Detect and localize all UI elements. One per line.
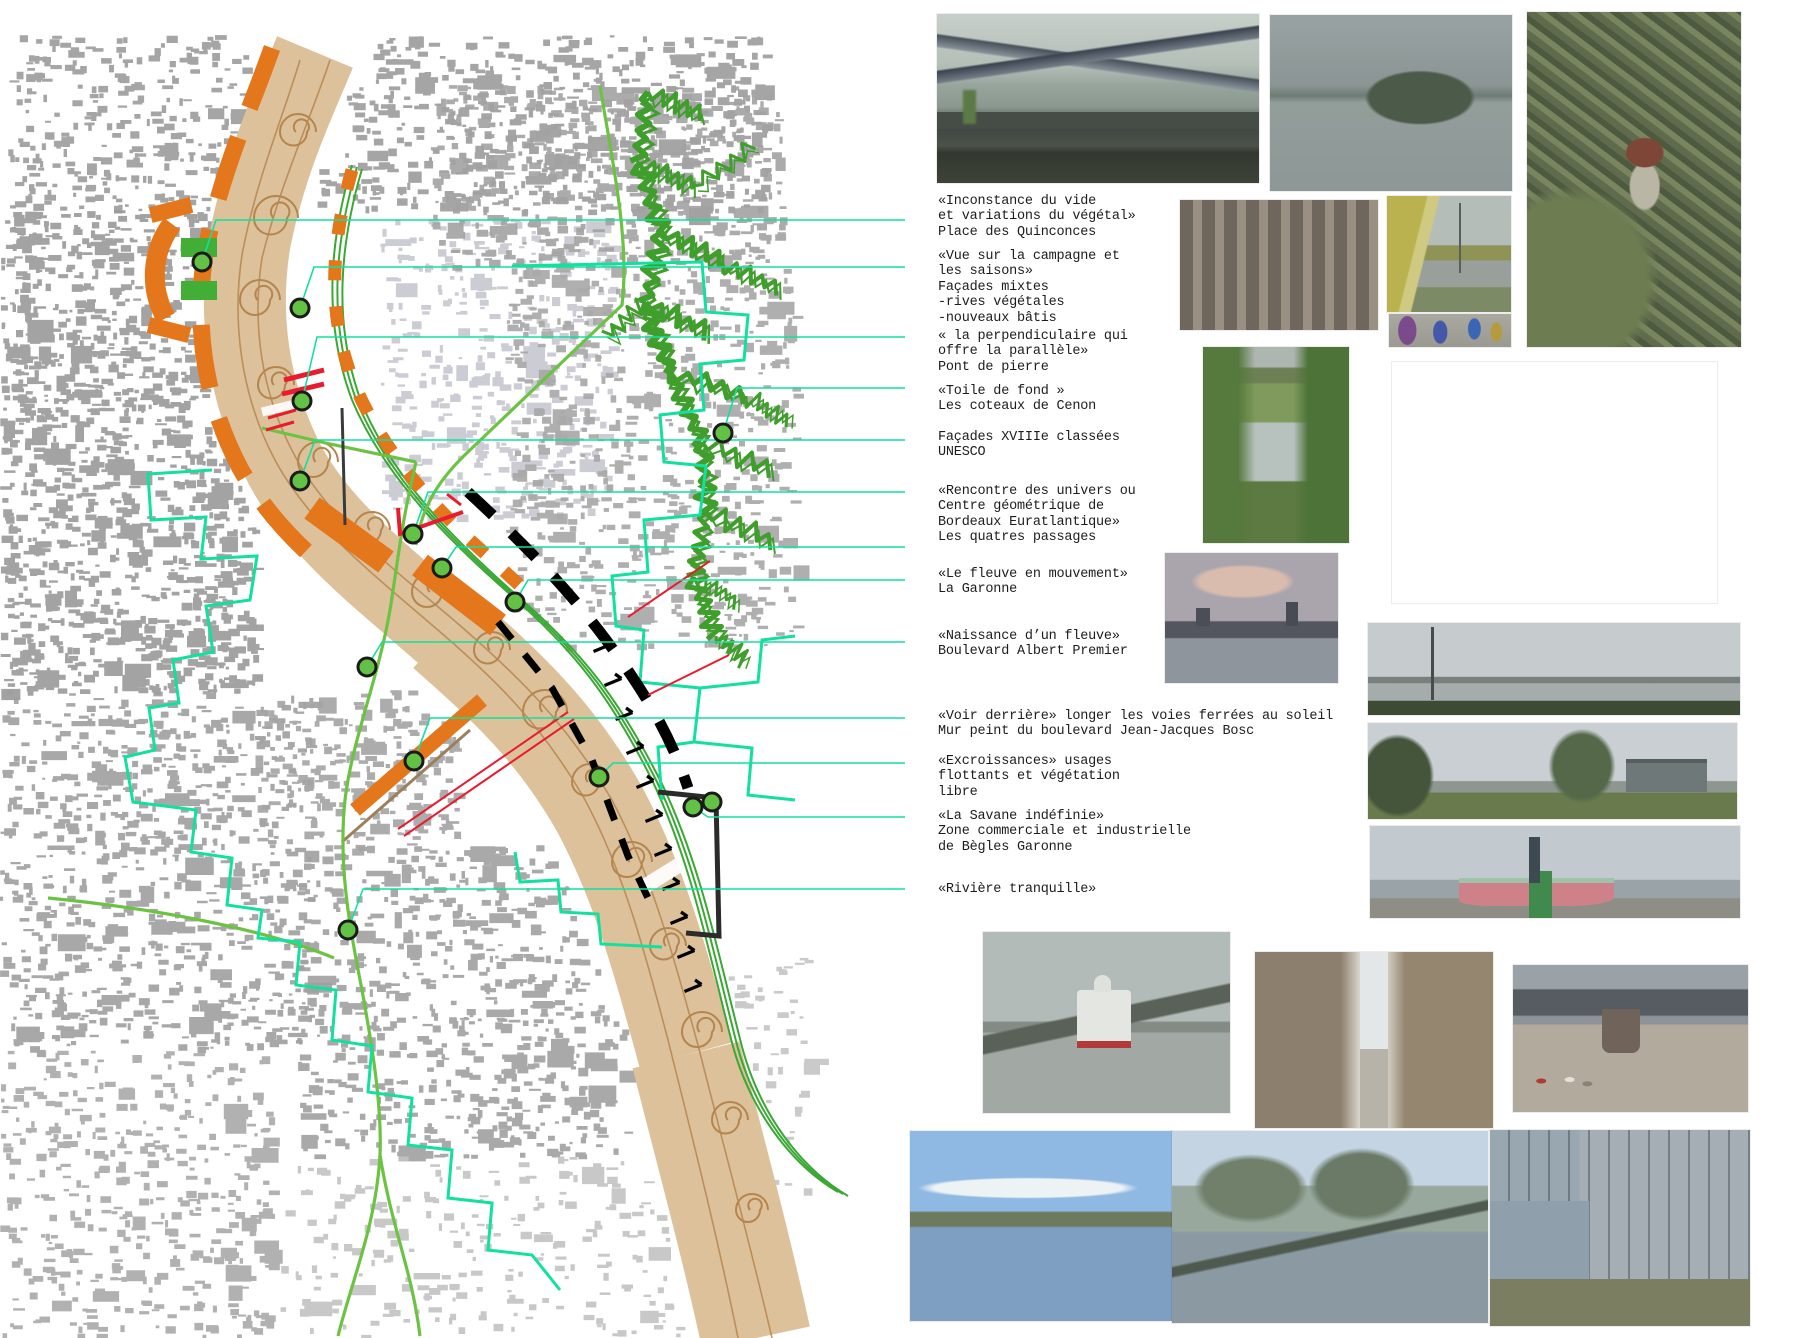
- leader-toile: [723, 388, 905, 433]
- sequence-marker: [684, 798, 702, 816]
- sequence-marker: [405, 752, 423, 770]
- sequence-marker: [433, 559, 451, 577]
- sequence-marker: [193, 253, 211, 271]
- photo-strip-flooded: [1172, 1131, 1488, 1323]
- photo-marsh: [1203, 347, 1349, 543]
- annotation-riviere: «Rivière tranquille»: [938, 882, 1096, 897]
- photo-pano-lamppost: [1368, 623, 1740, 715]
- annotation-vue: «Vue sur la campagne et les saisons» Faç…: [938, 249, 1120, 326]
- analysis-board: «Inconstance du vide et variations du vé…: [0, 0, 1800, 1338]
- photo-graffiti: [1389, 314, 1511, 347]
- photo-pano-boat: [1370, 826, 1740, 918]
- photo-under-bridge: [1513, 965, 1748, 1112]
- leader-savane: [693, 807, 905, 817]
- photo-rail-mural: [1387, 196, 1511, 312]
- photo-pano-shed: [1368, 723, 1737, 819]
- photo-bridges: [937, 14, 1259, 183]
- annotation-toile: «Toile de fond » Les coteaux de Cenon: [938, 384, 1096, 415]
- photo-boat-quay: [983, 932, 1230, 1113]
- sequence-marker: [506, 593, 524, 611]
- annotation-fleuve: «Le fleuve en mouvement» La Garonne: [938, 567, 1128, 598]
- photo-forest-tower: [1527, 12, 1741, 347]
- photo-strip-blue: [910, 1131, 1172, 1321]
- sequence-marker: [339, 921, 357, 939]
- annotation-savane: «La Savane indéfinie» Zone commerciale e…: [938, 809, 1191, 855]
- annotation-perpendiculaire: « la perpendiculaire qui offre la parall…: [938, 329, 1128, 375]
- annotation-excroissances: «Excroissances» usages flottants et végé…: [938, 754, 1120, 800]
- sequence-marker: [404, 525, 422, 543]
- sequence-marker: [358, 658, 376, 676]
- photo-strip-shed: [1490, 1130, 1750, 1326]
- leader-fleuve: [442, 547, 905, 568]
- annotation-facades: Façades XVIIIe classées UNESCO: [938, 430, 1120, 461]
- annotation-rencontre: «Rencontre des univers ou Centre géométr…: [938, 484, 1136, 546]
- photo-pont-pierre: [1180, 200, 1378, 330]
- sequence-marker: [703, 793, 721, 811]
- photo-dusk-skyline: [1165, 553, 1338, 683]
- annotation-voir: «Voir derrière» longer les voies ferrées…: [938, 709, 1333, 740]
- sequence-marker: [291, 472, 309, 490]
- sequence-marker: [291, 299, 309, 317]
- sequence-marker: [293, 392, 311, 410]
- sequence-marker: [590, 768, 608, 786]
- photo-street-alley: [1255, 952, 1493, 1128]
- sequence-marker: [714, 424, 732, 442]
- annotation-naissance: «Naissance d’un fleuve» Boulevard Albert…: [938, 629, 1128, 660]
- annotation-inconstance: «Inconstance du vide et variations du vé…: [938, 194, 1136, 240]
- photo-river-wide: [1270, 15, 1512, 191]
- photo-coteaux-view: [1392, 362, 1717, 603]
